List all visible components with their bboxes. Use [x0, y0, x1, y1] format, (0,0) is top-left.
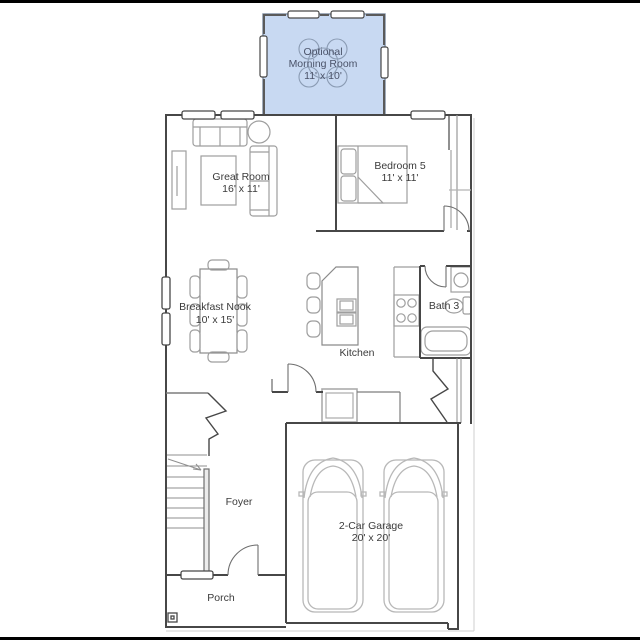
window-icon: [182, 111, 215, 119]
exterior-trim: [166, 118, 474, 631]
great-room-dims: 16' x 11': [222, 183, 260, 195]
window-icon: [331, 11, 364, 18]
room-dims: 11' x 10': [304, 70, 342, 82]
great-room-label: Great Room: [212, 171, 269, 183]
floorplan-screenshot: Optional Morning Room 11' x 10' Great Ro…: [0, 0, 640, 640]
pillow: [341, 176, 356, 201]
stool: [307, 321, 320, 337]
window-icon: [181, 571, 213, 579]
kitchen-label: Kitchen: [339, 347, 374, 359]
bath3-door: [425, 266, 446, 287]
garage-label: 2-Car Garage: [339, 520, 403, 532]
media-console: [172, 151, 186, 209]
round-table: [248, 121, 270, 143]
chair: [237, 276, 247, 298]
porch-label: Porch: [207, 592, 235, 604]
wall-layer: [165, 115, 472, 629]
angled-storage-wall: [431, 358, 448, 422]
burner: [408, 299, 416, 307]
pillow: [341, 149, 356, 174]
top-letterbox-bar: [0, 0, 640, 3]
furniture-layer: [166, 119, 471, 612]
appliance: [322, 389, 357, 422]
window-icon: [381, 47, 388, 78]
burner: [397, 299, 405, 307]
window-icon: [162, 277, 170, 309]
breakfast-nook-label: Breakfast Nook: [179, 301, 252, 313]
front-door: [228, 545, 258, 575]
stool: [307, 297, 320, 313]
window-icon: [221, 111, 254, 119]
chair: [237, 330, 247, 352]
toilet-tank: [463, 297, 471, 314]
sink: [454, 273, 468, 287]
bedroom5-dims: 11' x 11': [382, 172, 419, 184]
burner: [408, 314, 416, 322]
blanket-fold: [358, 177, 383, 203]
breakfast-nook-dims: 10' x 15': [196, 314, 234, 326]
foyer-angled-closet: [206, 393, 226, 456]
label-layer: Optional Morning Room 11' x 10' Great Ro…: [179, 46, 459, 604]
room-label: Morning Room: [289, 58, 358, 70]
room-label: Optional: [303, 46, 342, 58]
stair-rail: [204, 469, 209, 573]
window-icon: [288, 11, 319, 18]
chair: [190, 276, 200, 298]
window-icon: [411, 111, 445, 119]
kitchen-fixtures: [307, 267, 420, 357]
pantry-door: [288, 364, 316, 392]
stool: [307, 273, 320, 289]
staircase: [166, 455, 207, 528]
garage-dims: 20' x 20': [352, 532, 390, 544]
porch-post: [168, 613, 177, 622]
bath3-label: Bath 3: [429, 300, 460, 312]
window-icon: [260, 36, 267, 77]
floorplan-canvas: Optional Morning Room 11' x 10' Great Ro…: [0, 0, 640, 640]
great-room-furniture: [172, 119, 277, 216]
bedroom5-label: Bedroom 5: [374, 160, 426, 172]
chair: [190, 330, 200, 352]
bedroom5-closet: [449, 115, 471, 230]
foyer-label: Foyer: [226, 496, 253, 508]
window-icon: [162, 313, 170, 345]
burner: [397, 314, 405, 322]
bathtub-inner: [425, 331, 467, 351]
